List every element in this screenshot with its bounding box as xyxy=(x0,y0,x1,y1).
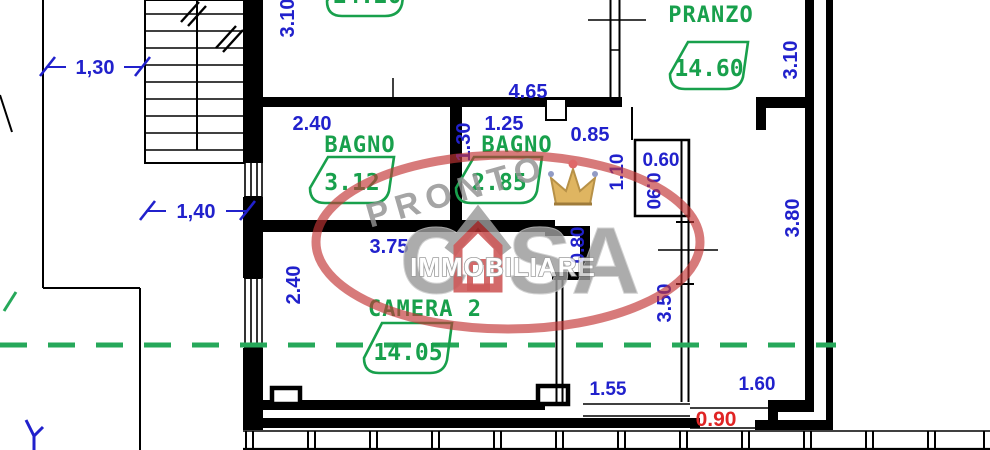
dim-camera2-height-left: 2.40 xyxy=(283,266,305,305)
wall-pillar-left xyxy=(272,388,300,404)
stairs xyxy=(145,0,244,163)
dim-ingresso-height: 3.80 xyxy=(782,199,804,238)
dim-landing-width: 1,40 xyxy=(177,201,216,223)
dim-top-room-height: 3.10 xyxy=(277,0,299,37)
area-pranzo: 14.60 xyxy=(674,56,743,82)
floor-plan-screenshot: 1,30 3.10 4.65 2.40 1.25 1.30 0.85 0.60 … xyxy=(0,0,990,450)
green-section-tick xyxy=(4,292,16,311)
dim-balcony-door-red: 0.90 xyxy=(696,408,737,431)
dim-balcony-span-right: 1.60 xyxy=(739,374,776,395)
area-top-room: 14.20 xyxy=(332,0,401,9)
floor-plan-drawing: 1,30 3.10 4.65 2.40 1.25 1.30 0.85 0.60 … xyxy=(0,0,990,450)
balcony-railing xyxy=(243,431,990,449)
watermark-bottom-text: IMMOBILIARE xyxy=(410,252,596,282)
window-camera2 xyxy=(244,278,262,348)
dim-entry-width: 0.85 xyxy=(571,124,610,146)
dim-bagno1-width: 2.40 xyxy=(293,113,332,135)
dim-bagno2-width: 1.25 xyxy=(485,113,524,135)
area-camera2: 14.05 xyxy=(373,340,442,366)
dim-pranzo-height: 3.10 xyxy=(780,41,802,80)
room-label-pranzo: PRANZO xyxy=(668,3,753,28)
wall-niche xyxy=(546,99,566,120)
room-label-bagno1: BAGNO xyxy=(324,133,395,158)
stair-break-marks xyxy=(181,2,243,52)
room-pranzo: PRANZO 14.60 xyxy=(668,3,753,89)
dim-stairs-width: 1,30 xyxy=(76,57,115,79)
dim-hall-width: 4.65 xyxy=(509,81,548,103)
dim-niche-width: 0.60 xyxy=(643,150,680,171)
dim-balcony-span-left: 1.55 xyxy=(590,379,627,400)
room-top: 14.20 xyxy=(327,0,407,16)
corner-dimension-tick xyxy=(26,420,43,450)
